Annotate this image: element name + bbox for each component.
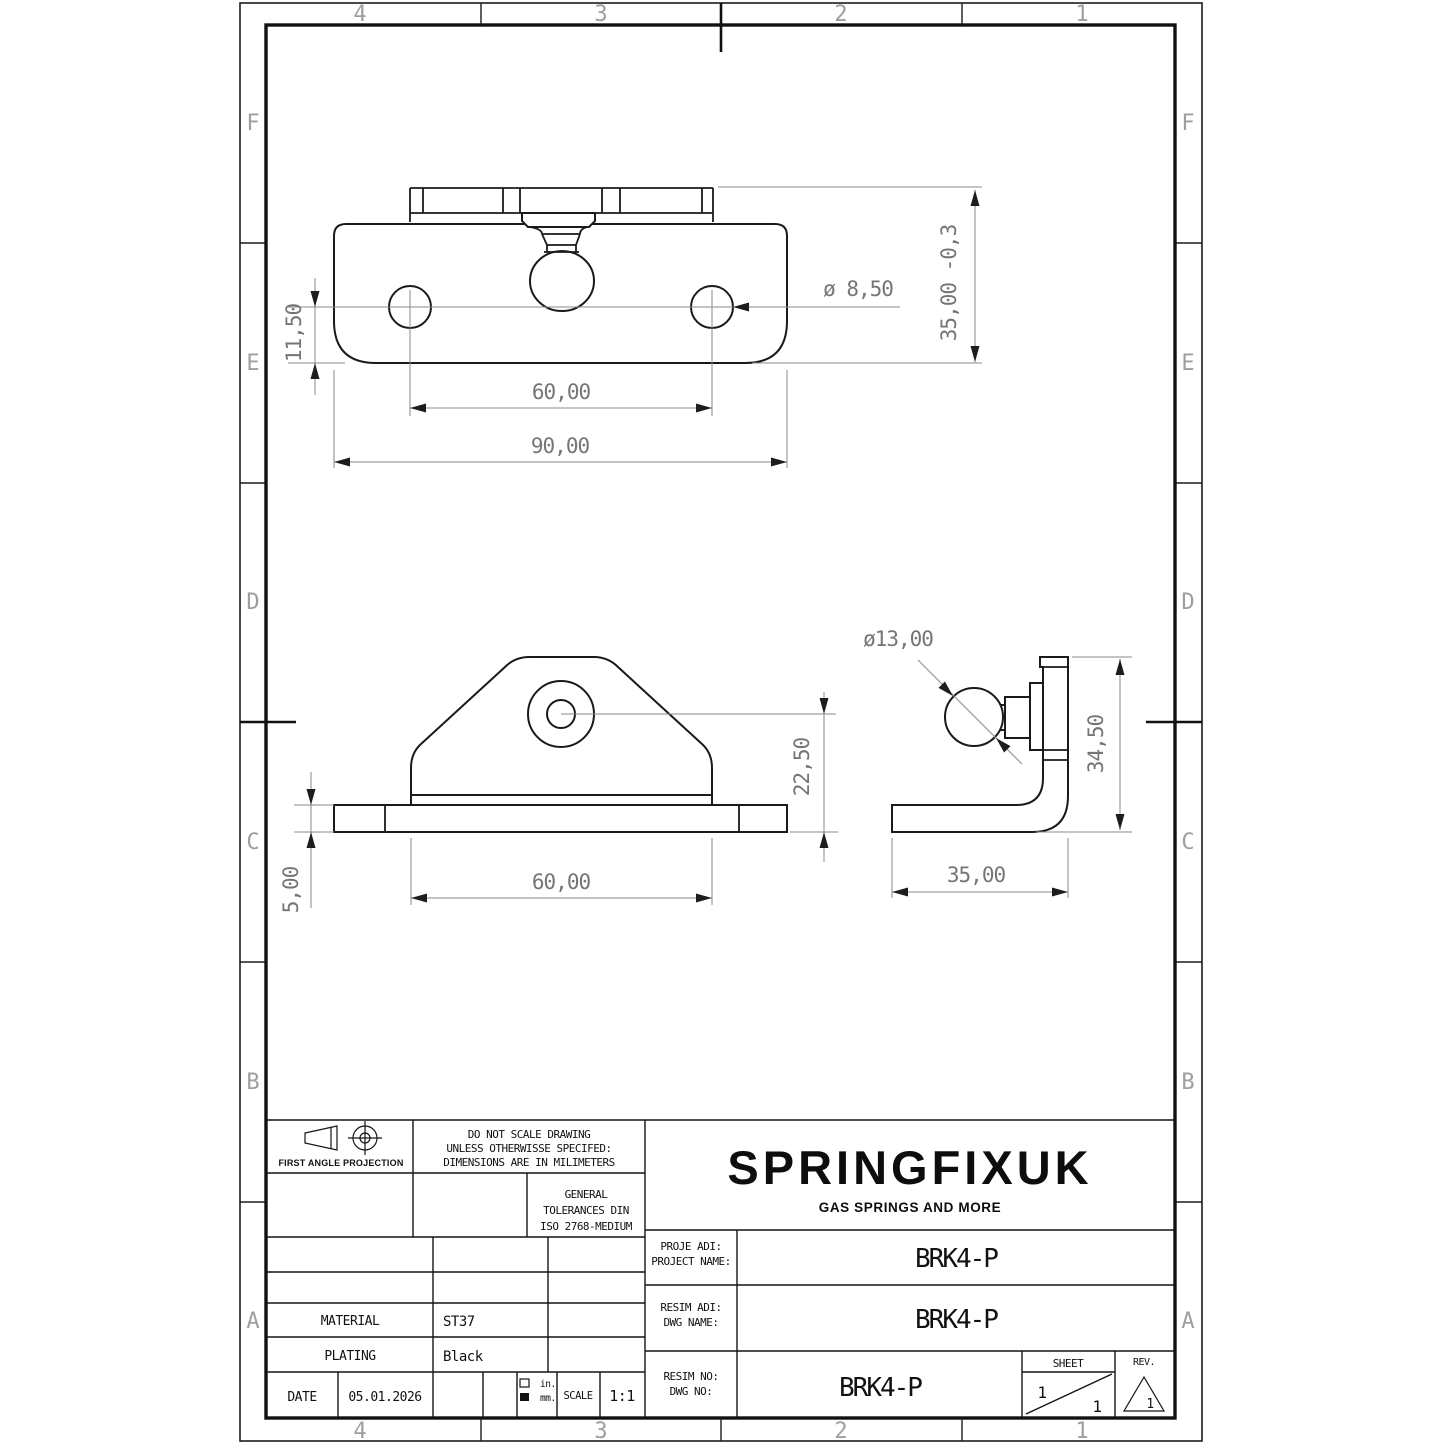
dwgno-label-tr: RESIM NO: [663, 1370, 718, 1383]
rev-triangle [1124, 1377, 1164, 1411]
zone-col-label: 2 [834, 2, 847, 27]
tolerance-line: ISO 2768-MEDIUM [540, 1220, 633, 1233]
stud-bolt [1030, 683, 1043, 750]
scale-label: SCALE [563, 1390, 592, 1402]
zone-row-label: D [1181, 590, 1194, 615]
scale-value: 1:1 [609, 1387, 635, 1405]
zone-row-label: A [246, 1309, 259, 1334]
mm-checkbox-checked [520, 1393, 529, 1401]
company-logo-text: SPRINGFIXUK [727, 1141, 1092, 1194]
tolerance-line: GENERAL [565, 1188, 609, 1201]
dim-hole-diameter: ø 8,50 [823, 277, 893, 301]
project-name-value: BRK4-P [915, 1244, 998, 1274]
zone-row-label: A [1181, 1309, 1194, 1334]
zone-row-label: B [1181, 1070, 1194, 1095]
zone-row-label: C [246, 830, 259, 855]
zone-col-label: 4 [353, 1419, 366, 1444]
zone-row-label: B [246, 1070, 259, 1095]
sheet-total: 1 [1092, 1397, 1101, 1416]
zone-col-label: 2 [834, 1419, 847, 1444]
plating-value: Black [443, 1349, 484, 1365]
side-view-ball-stud [945, 683, 1043, 750]
top-view: 11,50 60,00 90,00 ø 8,50 35,00 -0,3 [282, 187, 982, 468]
inches-checkbox [520, 1379, 529, 1387]
tolerance-line: TOLERANCES DIN [543, 1204, 629, 1217]
material-value: ST37 [443, 1314, 475, 1330]
sheet-current: 1 [1037, 1383, 1046, 1402]
front-view-weld-band [411, 795, 712, 805]
company-tagline: GAS SPRINGS AND MORE [819, 1200, 1002, 1215]
inches-label: in. [540, 1379, 556, 1390]
ball-side [945, 688, 1003, 746]
dim-overall-width: 90,00 [531, 434, 590, 458]
zone-row-label: F [1181, 111, 1194, 136]
dwg-no-value: BRK4-P [839, 1373, 922, 1403]
dim-bracket-depth: 35,00 [947, 863, 1006, 887]
dim-hole-offset: 11,50 [282, 304, 306, 363]
dim-plate-thickness: 5,00 [279, 866, 303, 913]
dwg-name-value: BRK4-P [915, 1305, 998, 1335]
material-label: MATERIAL [321, 1314, 380, 1329]
note-line: UNLESS OTHERWISSE SPECIFED: [446, 1142, 611, 1155]
ball-top [530, 251, 594, 311]
zone-col-label: 1 [1075, 2, 1088, 27]
zone-col-label: 1 [1075, 1419, 1088, 1444]
dwgname-label-en: DWG NAME: [663, 1316, 718, 1329]
title-block: FIRST ANGLE PROJECTION DO NOT SCALE DRAW… [266, 1120, 1175, 1418]
side-view-arrowheads [892, 659, 1125, 897]
dim-bracket-height: 34,50 [1084, 715, 1108, 774]
stud-washer [1005, 697, 1030, 738]
dim-hole-height: 22,50 [790, 738, 814, 797]
cad-drawing-canvas: 4 3 2 1 4 3 2 1 F E D C B A F E D C B A [0, 0, 1445, 1445]
zone-col-label: 3 [594, 2, 607, 27]
dim-hole-spacing: 60,00 [532, 380, 591, 404]
drawing-sheet: 4 3 2 1 4 3 2 1 F E D C B A F E D C B A [0, 0, 1445, 1445]
date-label: DATE [287, 1390, 316, 1405]
rev-label: REV. [1133, 1357, 1155, 1368]
projection-label: FIRST ANGLE PROJECTION [278, 1158, 403, 1168]
side-view-construction-lines [892, 657, 1132, 898]
dim-body-width: 60,00 [532, 870, 591, 894]
units-checkboxes: in. mm. [520, 1379, 556, 1404]
dim-ball-diameter: ø13,00 [863, 627, 933, 651]
sheet-label: SHEET [1053, 1357, 1084, 1370]
project-label-en: PROJECT NAME: [651, 1255, 731, 1268]
zone-row-label: E [246, 351, 259, 376]
project-label-tr: PROJE ADI: [660, 1240, 721, 1253]
note-line: DIMENSIONS ARE IN MILIMETERS [443, 1156, 614, 1169]
rev-value: 1 [1146, 1397, 1153, 1412]
plating-label: PLATING [324, 1349, 376, 1364]
zone-row-label: D [246, 590, 259, 615]
dim-plate-width-tol: 35,00 -0,3 [937, 224, 961, 341]
note-line: DO NOT SCALE DRAWING [468, 1128, 590, 1141]
dwgname-label-tr: RESIM ADI: [660, 1301, 721, 1314]
first-angle-projection-symbol [305, 1121, 382, 1155]
zone-row-label: F [246, 111, 259, 136]
zone-col-label: 4 [353, 2, 366, 27]
zone-col-label: 3 [594, 1419, 607, 1444]
dwgno-label-en: DWG NO: [670, 1385, 713, 1398]
zone-row-label: E [1181, 351, 1194, 376]
front-view-base-plate [334, 805, 787, 832]
side-view: ø13,00 34,50 35,00 [863, 627, 1132, 898]
mm-label: mm. [540, 1393, 556, 1404]
zone-row-label: C [1181, 830, 1194, 855]
front-view: 5,00 22,50 60,00 [279, 657, 838, 913]
date-value: 05.01.2026 [348, 1390, 421, 1405]
